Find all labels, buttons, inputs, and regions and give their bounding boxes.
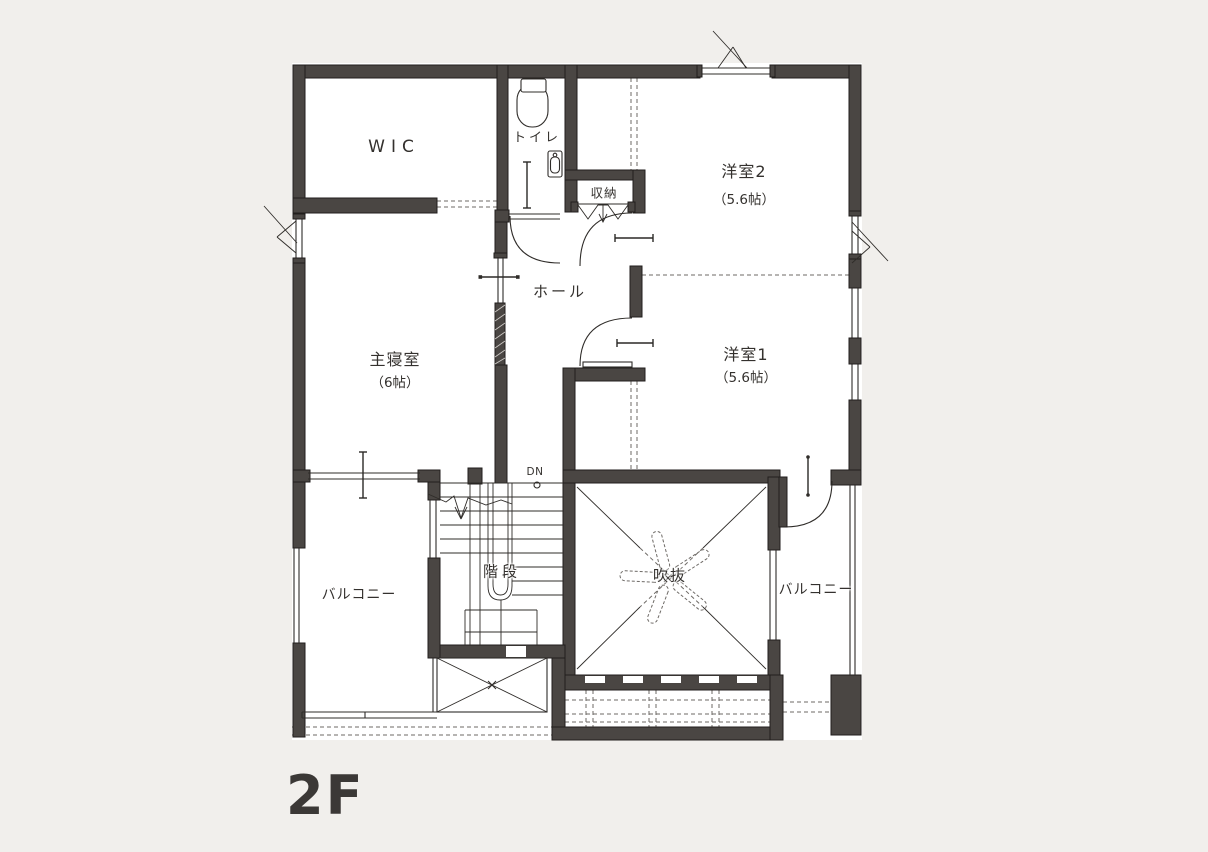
- label-toilet: トイレ: [513, 127, 561, 146]
- label-void: 吹抜: [653, 565, 687, 586]
- label-western-room-1-size: （5.6帖）: [715, 366, 777, 386]
- label-western-room-2-size: （5.6帖）: [713, 188, 775, 208]
- label-master-bedroom: 主寝室: [369, 346, 420, 370]
- label-stairs: 階段: [483, 561, 521, 582]
- label-stairs-direction: DN: [527, 466, 544, 478]
- label-western-room-1: 洋室1: [723, 341, 768, 365]
- label-western-room-2: 洋室2: [721, 158, 766, 182]
- label-storage: 収納: [590, 183, 617, 202]
- label-balcony-left: バルコニー: [322, 584, 397, 604]
- floor-plan-drawing: [0, 0, 1208, 852]
- label-balcony-right: バルコニー: [779, 579, 854, 599]
- roof-cross-box: [437, 658, 547, 712]
- label-wic: WIC: [368, 137, 420, 157]
- door-leaf-room1: [583, 362, 632, 367]
- label-master-bedroom-size: （6帖）: [370, 371, 419, 391]
- label-hall: ホール: [533, 281, 587, 302]
- toilet-icon: [517, 79, 548, 127]
- washbasin-icon: [548, 151, 562, 177]
- door-leaf-balcony: [779, 477, 787, 527]
- floor-label: 2F: [286, 764, 364, 827]
- floor-plan: WIC トイレ 収納 洋室2 （5.6帖） ホール 主寝室 （6帖） 洋室1 （…: [0, 0, 1208, 852]
